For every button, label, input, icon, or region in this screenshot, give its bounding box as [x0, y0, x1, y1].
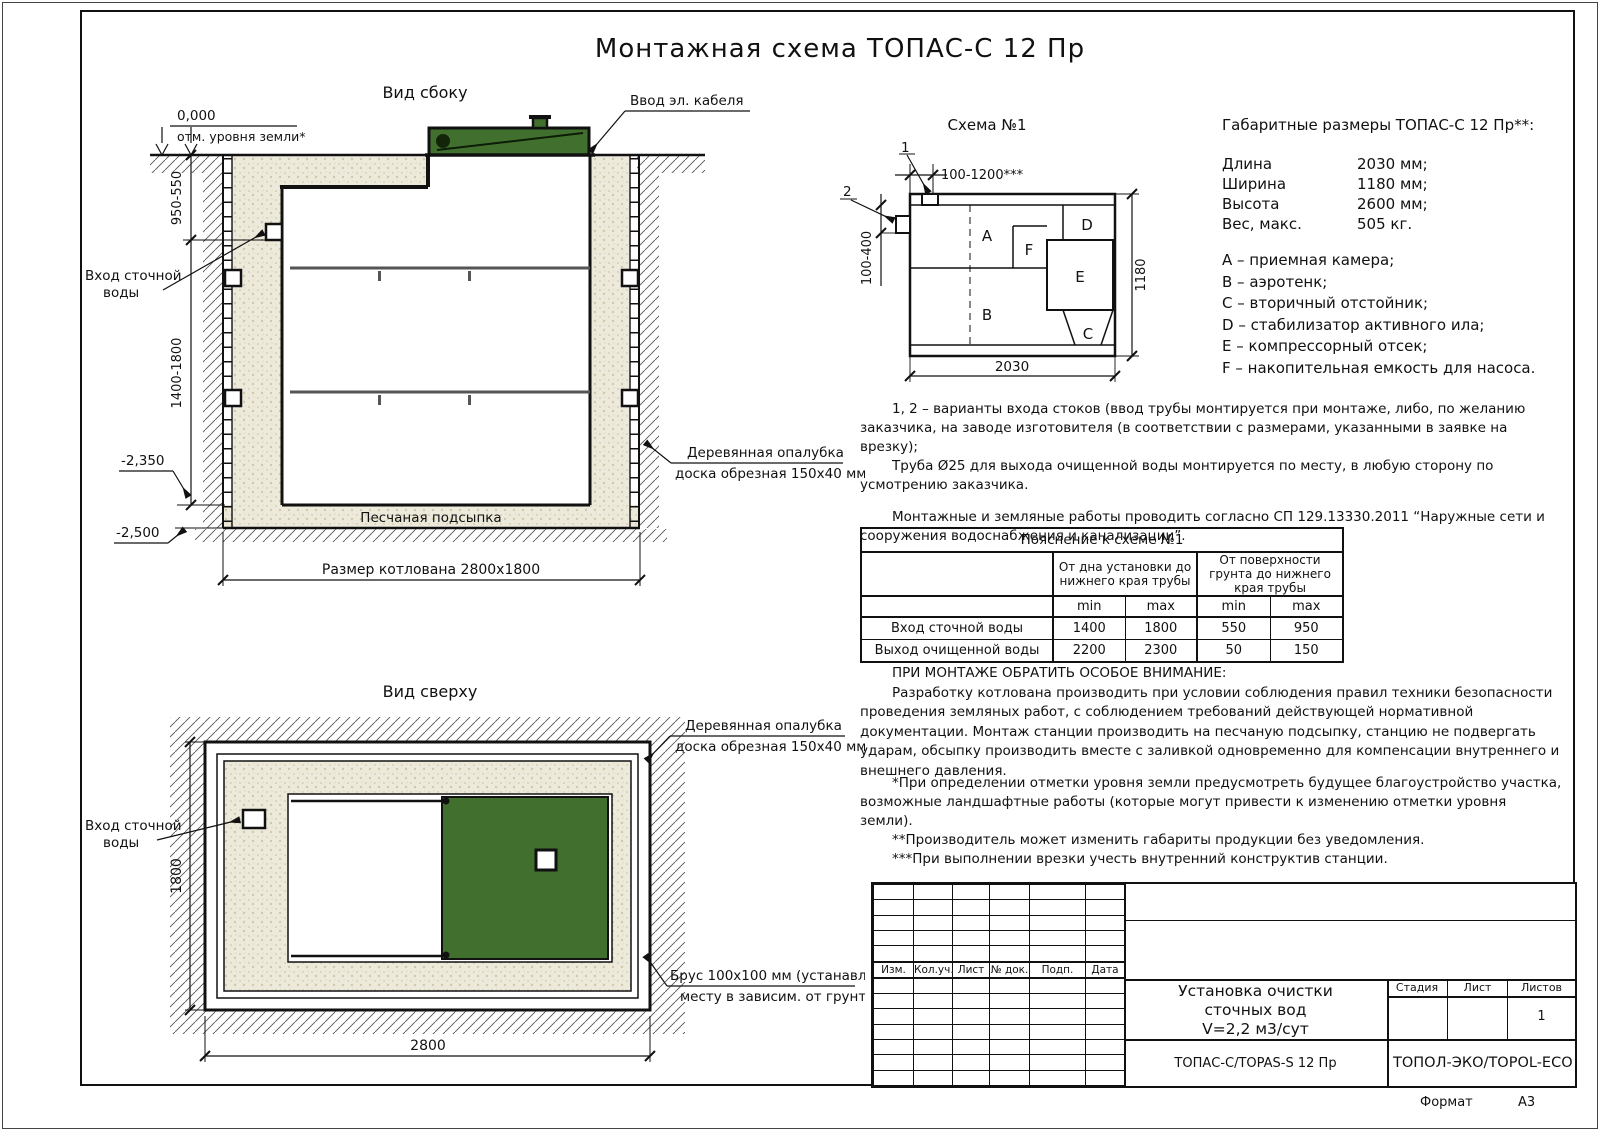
explanation-table: Пояснение к схеме №1 От дна установки до…	[860, 527, 1344, 663]
formwork-label-line2: доска обрезная 150x40 мм	[675, 466, 865, 482]
formwork-top-label-line2: доска обрезная 150x40 мм	[675, 739, 865, 755]
inlet-top-label-line1: Вход сточной	[85, 818, 182, 834]
footnote-3: ***При выполнении врезки учесть внутренн…	[860, 850, 1562, 869]
stamp-sheet-values: 1	[1387, 998, 1575, 1040]
stamp-sheet-headers: Стадия Лист Листов	[1387, 980, 1575, 998]
stamp-project-title: Установка очистки сточных вод V=2,2 м3/с…	[1124, 980, 1387, 1040]
minmax-header: max	[1270, 596, 1343, 617]
tank-top	[288, 794, 612, 962]
note-variants-1: 1, 2 – варианты входа стоков (ввод трубы…	[860, 400, 1562, 457]
dim-2030: 2030	[995, 359, 1029, 375]
legend-item: B – аэротенк;	[1222, 272, 1572, 294]
svg-text:1800: 1800	[169, 858, 185, 894]
minmax-header: min	[1053, 596, 1125, 617]
revision-header-row: Изм. Кол.уч. Лист № док. Подп. Дата	[874, 962, 1125, 978]
tank-lid-top	[442, 797, 608, 959]
inlet-pipe-stub	[266, 224, 282, 240]
footnote-2: **Производитель может изменить габариты …	[860, 831, 1562, 850]
col-group-2: От поверхности грунта до нижнего края тр…	[1197, 552, 1343, 596]
schema-inlet-1	[922, 194, 938, 205]
cable-label: Ввод эл. кабеля	[630, 93, 744, 109]
stamp-company: ТОПОЛ-ЭКО/TOPOL-ECO	[1387, 1040, 1575, 1086]
sheet-label: Лист	[1447, 980, 1507, 996]
note-variants-2: Труба Ø25 для выхода очищенной воды монт…	[860, 457, 1562, 495]
dim-950-550: 950-550	[170, 171, 185, 225]
legend-item: E – компрессорный отсек;	[1222, 336, 1572, 358]
format-value: А3	[1518, 1095, 1535, 1110]
stage-label: Стадия	[1387, 980, 1447, 996]
sand-label: Песчаная подсыпка	[360, 510, 501, 526]
legend-item: D – стабилизатор активного ила;	[1222, 315, 1572, 337]
room-d: D	[1081, 216, 1093, 234]
attention-body: Разработку котлована производить при усл…	[860, 684, 1562, 782]
room-a: A	[982, 227, 993, 245]
formwork-label-line1: Деревянная опалубка	[687, 445, 844, 461]
col-group-1: От дна установки до нижнего края трубы	[1053, 552, 1197, 596]
callout-2: 2	[843, 184, 852, 200]
pit-dim-label: Размер котлована 2800x1800	[322, 562, 540, 578]
dim-1400-1800: 1400-1800	[170, 338, 185, 409]
top-view-label: Вид сверху	[383, 682, 478, 701]
room-c: C	[1083, 325, 1093, 343]
minmax-header: min	[1197, 596, 1270, 617]
revision-table: Изм. Кол.уч. Лист № док. Подп. Дата	[873, 884, 1125, 1086]
vent-pipe	[533, 118, 547, 128]
legend-item: F – накопительная емкость для насоса.	[1222, 358, 1572, 380]
dim-row-weight: Вес, макс. 505 кг.	[1222, 214, 1572, 234]
compartment-legend: A – приемная камера; B – аэротенк; C – в…	[1222, 250, 1572, 379]
formwork-top-label-line1: Деревянная опалубка	[685, 718, 842, 734]
table-row: Вход сточной воды 1400 1800 550 950	[861, 617, 1343, 640]
stamp-model: ТОПАС-С/TOPAS-S 12 Пр	[1124, 1040, 1387, 1086]
inlet-label-line1: Вход сточной	[85, 268, 182, 284]
minmax-header: max	[1125, 596, 1197, 617]
tank-body	[280, 155, 590, 505]
title-block: Изм. Кол.уч. Лист № док. Подп. Дата Уста…	[871, 882, 1577, 1088]
dim-100-400: 100-400	[860, 231, 875, 285]
sheets-value: 1	[1507, 998, 1575, 1040]
dim-row-height: Высота 2600 мм;	[1222, 194, 1572, 214]
drawing-sheet: { "title": "Монтажная схема ТОПАС-С 12 П…	[0, 0, 1600, 1131]
dim-row-length: Длина 2030 мм;	[1222, 154, 1572, 174]
beam-label-line1: Брус 100x100 мм (устанавл. по	[670, 968, 865, 984]
inlet-label-line2: воды	[103, 285, 139, 301]
svg-text:2800: 2800	[410, 1038, 446, 1054]
beam-label-line2: месту в зависим. от грунта)	[680, 989, 865, 1005]
legend-item: A – приемная камера;	[1222, 250, 1572, 272]
lid-hatch	[536, 850, 556, 870]
svg-text:-2,350: -2,350	[121, 453, 165, 469]
formwork-annotation: Деревянная опалубка доска обрезная 150x4…	[646, 443, 865, 482]
side-view-label: Вид сбоку	[382, 83, 467, 102]
sheets-label: Листов	[1507, 980, 1575, 996]
zero-mark: 0,000	[177, 108, 216, 124]
dim-row-width: Ширина 1180 мм;	[1222, 174, 1572, 194]
legend-item: C – вторичный отстойник;	[1222, 293, 1572, 315]
schema-title: Схема №1	[948, 116, 1027, 134]
ground-note: отм. уровня земли*	[177, 129, 305, 144]
format-label: Формат	[1420, 1095, 1473, 1110]
room-e: E	[1075, 268, 1084, 286]
room-f: F	[1025, 241, 1034, 259]
table-row: Выход очищенной воды 2200 2300 50 150	[861, 640, 1343, 663]
dim-100-1200: 100-1200***	[941, 168, 1024, 183]
stamp-line	[1124, 920, 1575, 921]
schema-inlet-2	[896, 216, 910, 233]
dimensions-header: Габаритные размеры ТОПАС-С 12 Пр**:	[1222, 116, 1572, 134]
zero-level-annotation: 0,000 отм. уровня земли*	[156, 108, 305, 155]
schema-room-labels: A B C D E F	[982, 216, 1093, 343]
top-view-drawing: Вид сверху Вход сточной воды 1800	[85, 672, 865, 1084]
table-title: Пояснение к схеме №1	[861, 528, 1343, 552]
inlet-top-label-line2: воды	[103, 835, 139, 851]
lid-hinge	[436, 134, 450, 148]
notes-block: 1, 2 – варианты входа стоков (ввод трубы…	[860, 400, 1562, 546]
footnote-1: *При определении отметки уровня земли пр…	[860, 774, 1562, 831]
schema-callouts: 1 2	[840, 140, 928, 220]
side-view-drawing: Вид сбоку	[85, 80, 865, 600]
overall-dimensions-block: Габаритные размеры ТОПАС-С 12 Пр**: Длин…	[1222, 116, 1572, 379]
inlet-pipe-stub-top	[243, 810, 265, 828]
attention-header: ПРИ МОНТАЖЕ ОБРАТИТЬ ОСОБОЕ ВНИМАНИЕ:	[860, 664, 1562, 684]
attention-block: ПРИ МОНТАЖЕ ОБРАТИТЬ ОСОБОЕ ВНИМАНИЕ: Ра…	[860, 664, 1562, 781]
schema-drawing: Схема №1 A B C D E F 1 2	[835, 108, 1195, 398]
svg-text:-2,500: -2,500	[116, 525, 160, 541]
cable-annotation: Ввод эл. кабеля	[591, 93, 750, 151]
sheet-title: Монтажная схема ТОПАС-С 12 Пр	[560, 34, 1120, 64]
room-b: B	[982, 306, 992, 324]
dim-1180: 1180	[1134, 258, 1149, 291]
tank-lid	[425, 117, 595, 155]
